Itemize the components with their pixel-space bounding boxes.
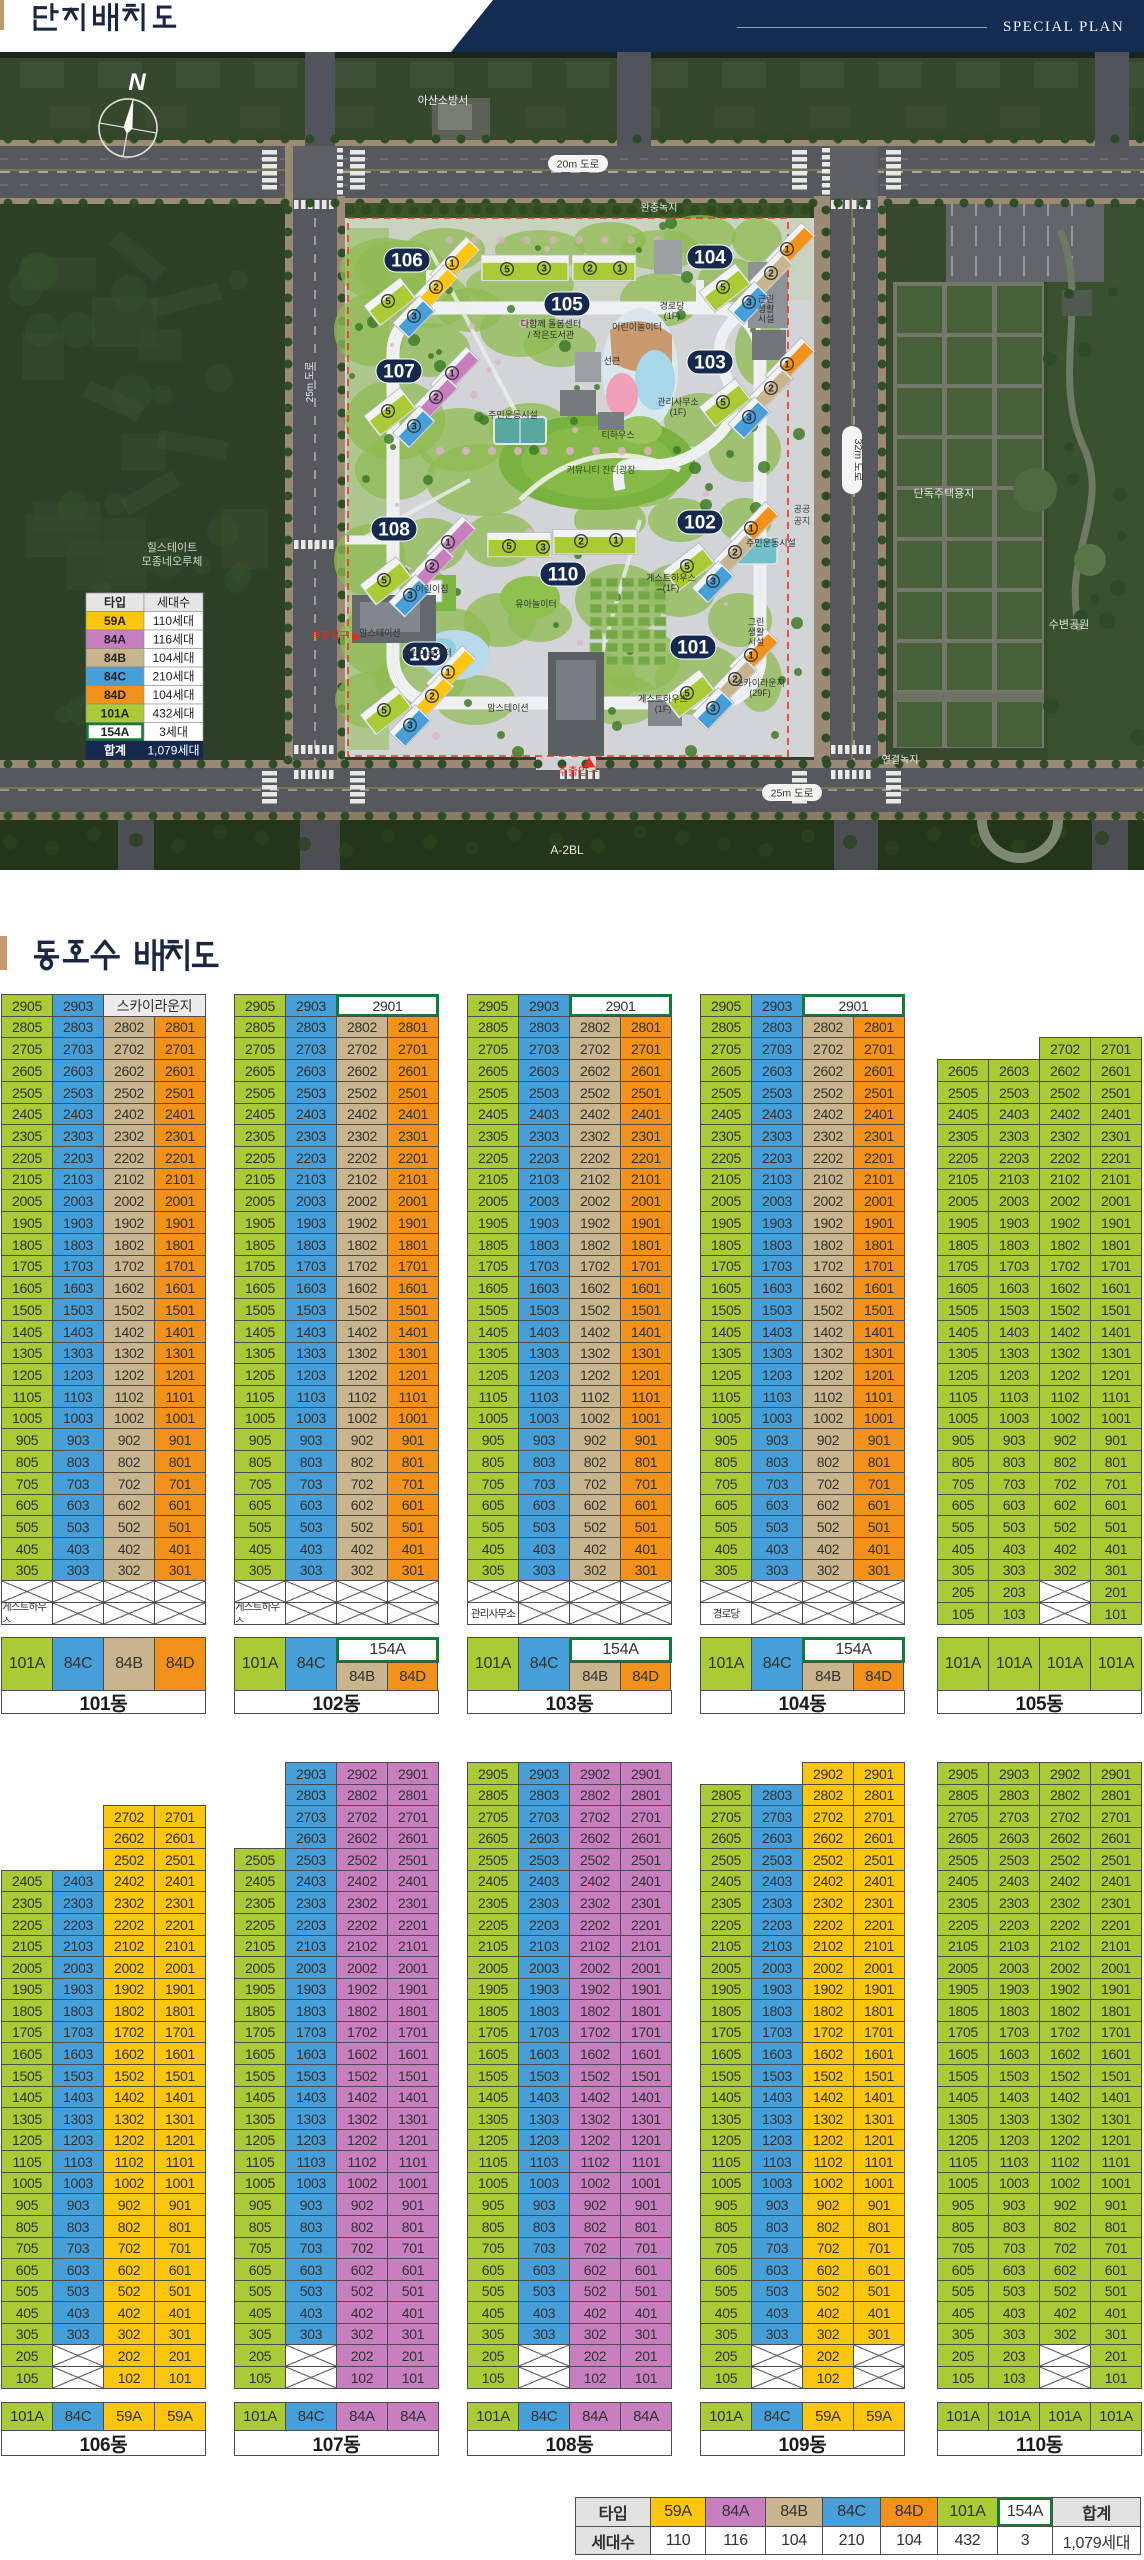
- svg-text:근린: 근린: [758, 294, 775, 304]
- svg-text:5: 5: [720, 398, 726, 409]
- svg-text:생활: 생활: [748, 626, 765, 637]
- svg-text:5: 5: [506, 542, 512, 553]
- svg-text:3: 3: [411, 312, 417, 323]
- svg-text:3: 3: [407, 591, 413, 602]
- svg-text:1: 1: [784, 245, 790, 256]
- svg-text:유아놀이터: 유아놀이터: [515, 599, 556, 609]
- svg-text:N: N: [128, 69, 146, 96]
- svg-text:(29F): (29F): [749, 688, 771, 698]
- svg-text:32m 도로: 32m 도로: [852, 439, 864, 482]
- svg-text:2: 2: [433, 283, 439, 294]
- svg-text:어린이놀이터: 어린이놀이터: [612, 322, 662, 332]
- svg-text:2: 2: [433, 393, 439, 404]
- svg-text:84D: 84D: [104, 688, 126, 702]
- svg-text:108: 108: [378, 520, 410, 541]
- svg-text:25m 도로: 25m 도로: [771, 788, 814, 800]
- svg-text:세대수: 세대수: [157, 596, 190, 610]
- svg-text:2: 2: [587, 264, 593, 275]
- svg-text:432세대: 432세대: [152, 707, 194, 721]
- svg-text:그린: 그린: [748, 617, 765, 627]
- svg-text:210세대: 210세대: [152, 670, 194, 684]
- svg-text:커뮤니티 잔디광장: 커뮤니티 잔디광장: [567, 464, 636, 475]
- svg-text:105: 105: [551, 295, 583, 316]
- svg-text:어린이놀이터: 어린이놀이터: [402, 648, 452, 658]
- svg-text:5: 5: [385, 297, 391, 308]
- svg-text:110: 110: [548, 565, 579, 586]
- svg-text:2: 2: [429, 692, 435, 703]
- svg-text:관리사무소: 관리사무소: [657, 397, 698, 407]
- svg-text:생활: 생활: [758, 303, 775, 314]
- svg-text:102: 102: [684, 513, 716, 534]
- svg-text:3: 3: [540, 543, 546, 554]
- svg-text:완충녹지: 완충녹지: [641, 202, 678, 214]
- svg-text:경로당: 경로당: [660, 300, 685, 311]
- svg-text:84A: 84A: [104, 633, 126, 647]
- svg-text:116세대: 116세대: [153, 633, 194, 647]
- svg-text:아산소방서: 아산소방서: [418, 94, 469, 107]
- svg-text:맘스테이션: 맘스테이션: [359, 628, 400, 638]
- svg-text:3: 3: [746, 413, 752, 424]
- svg-text:1: 1: [613, 536, 619, 547]
- svg-text:(1F): (1F): [663, 583, 680, 593]
- svg-text:단독주택용지: 단독주택용지: [914, 487, 975, 500]
- svg-text:5: 5: [381, 576, 387, 587]
- svg-text:합계: 합계: [104, 743, 126, 758]
- svg-text:1: 1: [748, 651, 754, 662]
- svg-text:2: 2: [768, 384, 774, 395]
- svg-text:104: 104: [694, 248, 726, 269]
- svg-text:2: 2: [768, 269, 774, 280]
- svg-text:타입: 타입: [104, 595, 126, 610]
- svg-text:(1F): (1F): [664, 311, 681, 321]
- svg-text:연결녹지: 연결녹지: [882, 754, 919, 766]
- svg-text:선큰: 선큰: [604, 356, 621, 366]
- svg-text:주민운동시설: 주민운동시설: [488, 410, 538, 420]
- svg-text:84C: 84C: [104, 670, 126, 684]
- svg-text:다함께 돌봄센터: 다함께 돌봄센터: [521, 319, 581, 329]
- svg-text:5: 5: [684, 562, 690, 573]
- svg-text:공지: 공지: [794, 516, 811, 526]
- svg-text:게스트하우스: 게스트하우스: [646, 573, 696, 583]
- svg-text:3세대: 3세대: [159, 725, 188, 739]
- svg-text:104세대: 104세대: [152, 688, 194, 702]
- svg-text:3: 3: [710, 704, 716, 715]
- svg-text:3: 3: [710, 577, 716, 588]
- svg-text:맘스테이션: 맘스테이션: [487, 703, 528, 713]
- svg-text:/ 작은도서관: / 작은도서관: [528, 330, 574, 340]
- svg-text:3: 3: [746, 298, 752, 309]
- svg-text:1: 1: [445, 538, 451, 549]
- svg-text:2: 2: [732, 548, 738, 559]
- svg-text:시설: 시설: [758, 314, 775, 324]
- svg-text:1: 1: [449, 369, 455, 380]
- svg-text:103: 103: [694, 353, 726, 374]
- svg-text:시설: 시설: [748, 637, 765, 647]
- svg-text:공공: 공공: [794, 504, 811, 514]
- svg-text:25m 도로: 25m 도로: [305, 362, 316, 403]
- svg-text:101: 101: [677, 638, 709, 659]
- svg-text:154A: 154A: [101, 725, 130, 739]
- svg-text:모종네오루체: 모종네오루체: [142, 555, 203, 568]
- svg-text:106: 106: [391, 251, 423, 272]
- svg-text:2: 2: [429, 562, 435, 573]
- svg-text:3: 3: [411, 422, 417, 433]
- svg-text:110세대: 110세대: [153, 614, 194, 628]
- svg-text:티하우스: 티하우스: [601, 430, 634, 440]
- svg-text:20m 도로: 20m 도로: [557, 159, 600, 171]
- svg-text:1: 1: [449, 259, 455, 270]
- svg-text:스카이라운지: 스카이라운지: [735, 678, 785, 688]
- svg-text:104세대: 104세대: [152, 651, 194, 665]
- svg-text:5: 5: [504, 265, 510, 276]
- svg-text:힐스테이트: 힐스테이트: [147, 541, 198, 554]
- svg-text:2: 2: [578, 537, 584, 548]
- svg-text:(1F): (1F): [670, 407, 687, 417]
- svg-text:수변공원: 수변공원: [1049, 618, 1089, 631]
- svg-text:101A: 101A: [101, 707, 130, 721]
- svg-text:3: 3: [407, 721, 413, 732]
- svg-text:59A: 59A: [104, 614, 126, 628]
- svg-text:1: 1: [784, 360, 790, 371]
- svg-text:부출입구: 부출입구: [312, 629, 349, 642]
- svg-text:1: 1: [445, 668, 451, 679]
- svg-text:5: 5: [720, 283, 726, 294]
- svg-text:1: 1: [748, 524, 754, 535]
- svg-text:3: 3: [541, 264, 547, 275]
- svg-text:84B: 84B: [104, 651, 126, 665]
- svg-text:어린이집: 어린이집: [415, 583, 448, 594]
- svg-text:5: 5: [385, 407, 391, 418]
- svg-text:주민운동시설: 주민운동시설: [746, 538, 796, 548]
- svg-text:107: 107: [383, 362, 415, 383]
- svg-text:5: 5: [381, 706, 387, 717]
- svg-text:(1F): (1F): [655, 704, 672, 714]
- svg-text:게스트하우스: 게스트하우스: [638, 694, 688, 704]
- svg-text:A-2BL: A-2BL: [550, 843, 584, 857]
- svg-text:1: 1: [617, 264, 623, 275]
- svg-text:1,079세대: 1,079세대: [147, 744, 199, 758]
